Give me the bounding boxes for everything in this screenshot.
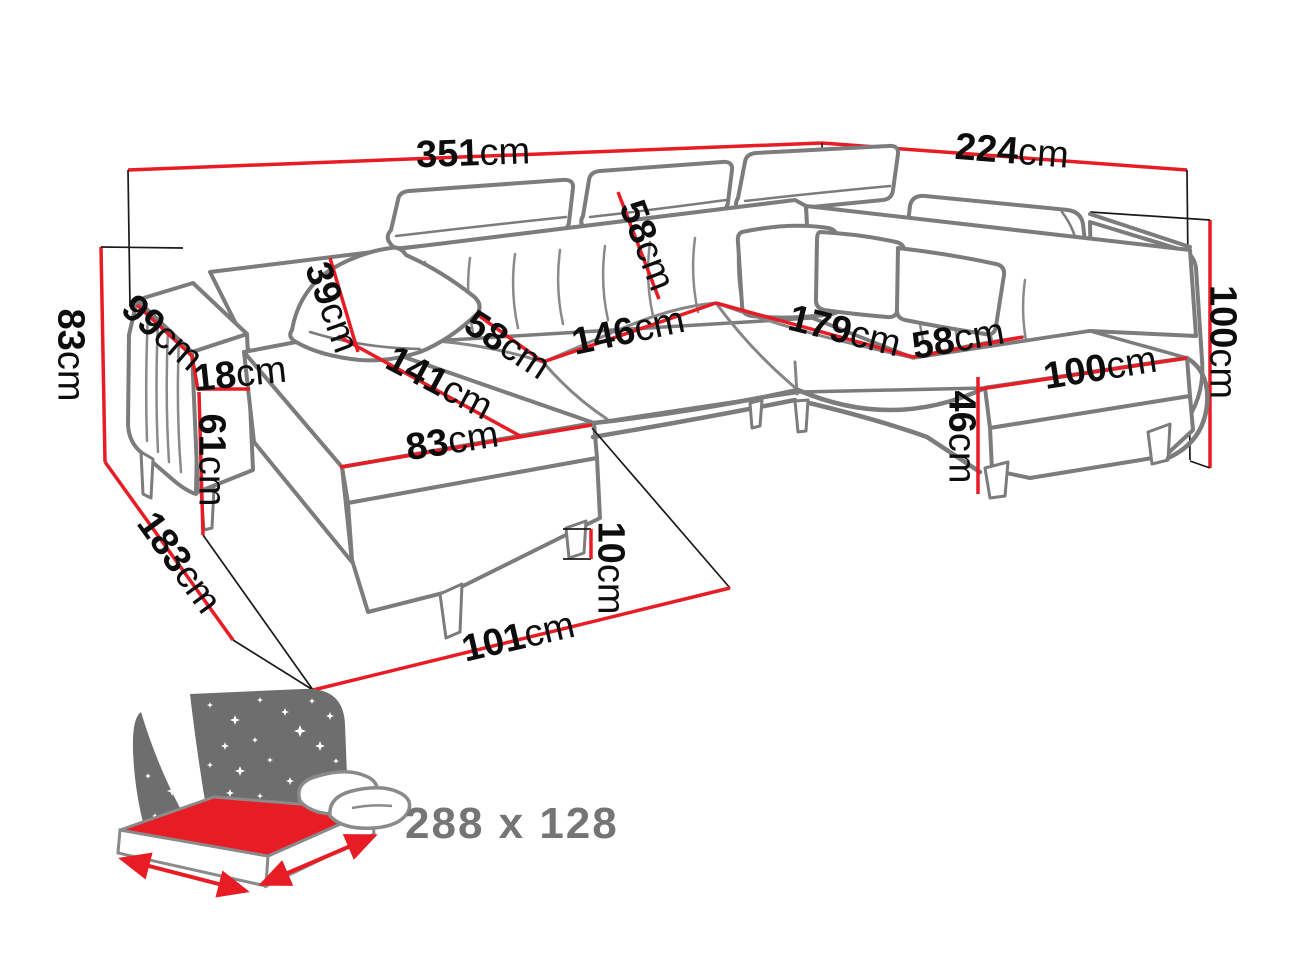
label-back-height-left: 83cm [50,309,92,402]
right-front-leg [985,462,1008,498]
armrest-back-leg [141,452,153,498]
label-armrest-height: 61cm [191,414,233,507]
label-seat-height: 46cm [941,391,983,484]
diagram-page: 351cm 224cm 83cm 99cm 18cm 61cm 183cm 39… [0,0,1303,977]
pillow-corner-2 [816,232,904,317]
label-leg-height: 10cm [590,522,632,615]
center-leg-2 [795,400,808,432]
chaise-front-right-leg [566,521,586,558]
sofa-dimension-diagram: 351cm 224cm 83cm 99cm 18cm 61cm 183cm 39… [0,0,1303,977]
bed-pillow-2 [330,788,410,829]
label-back-height-right: 100cm [1202,285,1244,399]
center-leg-1 [750,400,762,428]
bed-size-label: 288 x 128 [405,799,619,848]
label-right-back-depth: 224cm [953,126,1070,177]
label-total-back-width: 351cm [415,130,530,176]
